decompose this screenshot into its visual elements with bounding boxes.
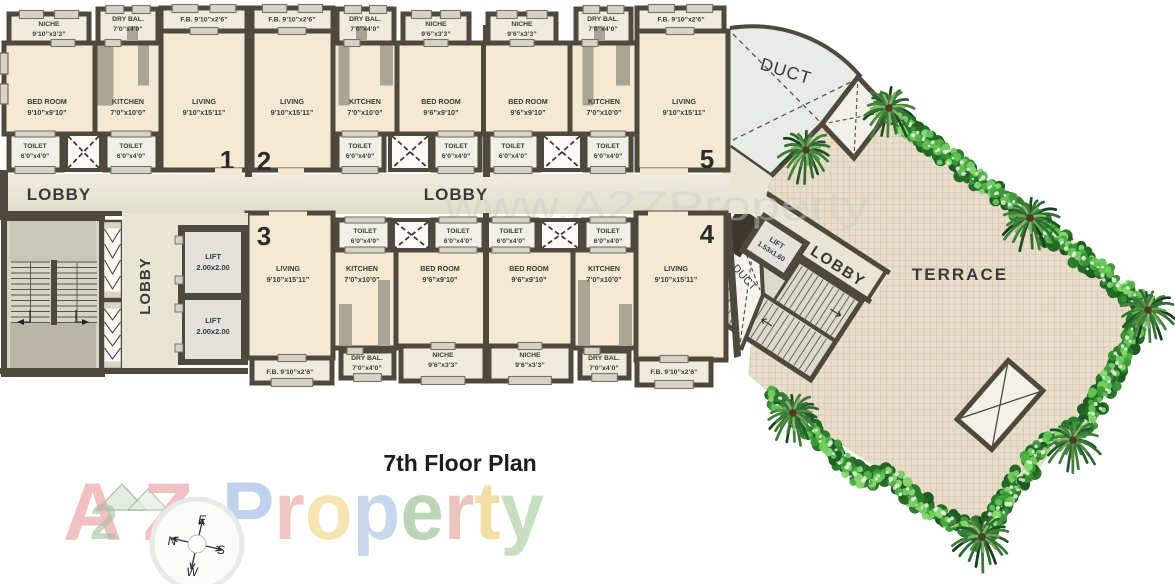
svg-text:DRY BAL.: DRY BAL. (351, 355, 383, 362)
svg-text:TOILET: TOILET (596, 143, 619, 150)
svg-text:6’0”x4’0”: 6’0”x4’0” (442, 153, 471, 160)
svg-text:F.B. 9’10”x2’6”: F.B. 9’10”x2’6” (266, 369, 313, 376)
svg-text:9’6”x9’10”: 9’6”x9’10” (511, 275, 547, 284)
svg-text:TOILET: TOILET (444, 143, 467, 150)
svg-text:6’0”x4’0”: 6’0”x4’0” (117, 153, 146, 160)
svg-text:TOILET: TOILET (596, 228, 619, 235)
svg-text:4: 4 (700, 219, 715, 249)
svg-text:NICHE: NICHE (432, 352, 454, 359)
svg-text:5: 5 (700, 144, 714, 174)
svg-text:NICHE: NICHE (519, 352, 541, 359)
svg-text:LOBBY: LOBBY (137, 257, 154, 315)
svg-text:3: 3 (257, 221, 271, 251)
svg-text:7’0”x4’0”: 7’0”x4’0” (588, 26, 617, 33)
svg-text:BED ROOM: BED ROOM (509, 264, 549, 273)
svg-text:9’6”x9’10”: 9’6”x9’10” (423, 108, 459, 117)
svg-text:9’6”x3’3”: 9’6”x3’3” (428, 362, 457, 369)
svg-text:7’0”x10’0”: 7’0”x10’0” (344, 275, 380, 284)
svg-text:7’0”x4’0”: 7’0”x4’0” (352, 365, 381, 372)
svg-text:DRY BAL.: DRY BAL. (349, 16, 381, 23)
svg-text:9’10”x15’11”: 9’10”x15’11” (663, 108, 706, 117)
svg-text:2.00x2.00: 2.00x2.00 (196, 327, 229, 336)
svg-text:KITCHEN: KITCHEN (349, 97, 381, 106)
svg-text:TOILET: TOILET (353, 228, 376, 235)
svg-text:7’0”x4’0”: 7’0”x4’0” (589, 365, 618, 372)
svg-text:2: 2 (257, 146, 271, 176)
svg-text:TOILET: TOILET (499, 228, 522, 235)
svg-text:DRY BAL.: DRY BAL. (112, 16, 144, 23)
svg-text:LIVING: LIVING (672, 97, 696, 106)
svg-text:LIVING: LIVING (280, 97, 304, 106)
svg-text:S: S (217, 543, 225, 557)
svg-text:9’10”x3’3”: 9’10”x3’3” (32, 31, 65, 38)
svg-text:7’0”x10’0”: 7’0”x10’0” (586, 275, 622, 284)
svg-text:6’0”x4’0”: 6’0”x4’0” (346, 153, 375, 160)
svg-text:6’0”x4’0”: 6’0”x4’0” (594, 153, 623, 160)
svg-text:6’0”x4’0”: 6’0”x4’0” (21, 153, 50, 160)
svg-text:9’10”x15’11”: 9’10”x15’11” (267, 275, 310, 284)
svg-text:LOBBY: LOBBY (424, 185, 489, 204)
svg-text:TERRACE: TERRACE (912, 265, 1008, 284)
svg-text:LIVING: LIVING (192, 97, 216, 106)
svg-text:6’0”x4’0”: 6’0”x4’0” (444, 238, 473, 245)
svg-text:TOILET: TOILET (501, 143, 524, 150)
svg-text:KITCHEN: KITCHEN (346, 264, 378, 273)
svg-text:6’0”x4’0”: 6’0”x4’0” (594, 238, 623, 245)
svg-text:TOILET: TOILET (119, 143, 142, 150)
svg-text:DRY BAL.: DRY BAL. (588, 355, 620, 362)
svg-text:LIFT: LIFT (205, 316, 221, 325)
svg-text:F.B. 9’10”x2’6”: F.B. 9’10”x2’6” (657, 17, 704, 24)
svg-text:9’6”x3’3”: 9’6”x3’3” (421, 31, 450, 38)
svg-text:9’10”x15’11”: 9’10”x15’11” (183, 108, 226, 117)
svg-text:BED ROOM: BED ROOM (508, 97, 548, 106)
svg-text:9’6”x3’3”: 9’6”x3’3” (507, 31, 536, 38)
svg-text:7’0”x10’0”: 7’0”x10’0” (347, 108, 383, 117)
svg-text:9’10”x15’11”: 9’10”x15’11” (271, 108, 314, 117)
svg-text:DRY BAL.: DRY BAL. (587, 16, 619, 23)
svg-text:6’0”x4’0”: 6’0”x4’0” (351, 238, 380, 245)
svg-text:Property: Property (222, 466, 544, 557)
svg-text:9’6”x3’3”: 9’6”x3’3” (515, 362, 544, 369)
svg-text:9’6”x9’10”: 9’6”x9’10” (422, 275, 458, 284)
svg-text:9’10”x9’10”: 9’10”x9’10” (27, 108, 67, 117)
svg-text:KITCHEN: KITCHEN (112, 97, 144, 106)
svg-text:TOILET: TOILET (348, 143, 371, 150)
svg-text:NICHE: NICHE (511, 21, 533, 28)
svg-text:7’0”x4’0”: 7’0”x4’0” (350, 26, 379, 33)
svg-text:BED ROOM: BED ROOM (27, 97, 67, 106)
svg-text:KITCHEN: KITCHEN (588, 264, 620, 273)
svg-text:BED ROOM: BED ROOM (421, 97, 461, 106)
svg-text:BED ROOM: BED ROOM (420, 264, 460, 273)
svg-text:7’0”x10’0”: 7’0”x10’0” (110, 108, 146, 117)
svg-text:NICHE: NICHE (425, 21, 447, 28)
svg-text:6’0”x4’0”: 6’0”x4’0” (497, 238, 526, 245)
svg-text:6’0”x4’0”: 6’0”x4’0” (499, 153, 528, 160)
svg-text:KITCHEN: KITCHEN (588, 97, 620, 106)
svg-text:TOILET: TOILET (23, 143, 46, 150)
svg-text:F.B. 9’10”x2’6”: F.B. 9’10”x2’6” (268, 17, 315, 24)
svg-text:F.B. 9’10”x2’6”: F.B. 9’10”x2’6” (650, 369, 697, 376)
svg-text:N: N (168, 534, 177, 548)
svg-text:2.00x2.00: 2.00x2.00 (196, 263, 229, 272)
svg-text:LIVING: LIVING (276, 264, 300, 273)
svg-text:9’10”x15’11”: 9’10”x15’11” (655, 275, 698, 284)
svg-text:E: E (198, 513, 207, 527)
svg-text:7’0”x4’0”: 7’0”x4’0” (113, 26, 142, 33)
svg-text:TOILET: TOILET (446, 228, 469, 235)
svg-text:F.B. 9’10”x2’6”: F.B. 9’10”x2’6” (180, 17, 227, 24)
svg-text:NICHE: NICHE (38, 21, 60, 28)
svg-text:2: 2 (90, 494, 118, 550)
svg-text:LIVING: LIVING (664, 264, 688, 273)
svg-text:W: W (186, 565, 199, 579)
svg-text:LOBBY: LOBBY (27, 185, 92, 204)
svg-text:7’0”x10’0”: 7’0”x10’0” (586, 108, 622, 117)
svg-text:9’6”x9’10”: 9’6”x9’10” (510, 108, 546, 117)
svg-text:LIFT: LIFT (205, 252, 221, 261)
